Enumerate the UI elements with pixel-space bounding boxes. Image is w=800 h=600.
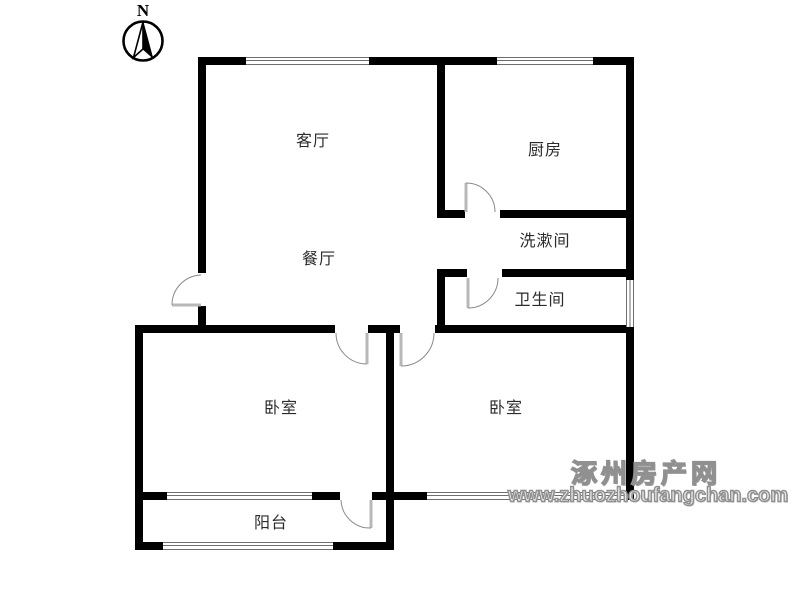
window-balcony bbox=[163, 542, 333, 550]
floor-plan: N 客厅 厨房 餐厅 洗漱间 卫生间 卧室 卧室 阳台 涿州房产网 www.zh… bbox=[0, 0, 800, 600]
room-label-kitchen: 厨房 bbox=[528, 136, 562, 160]
door-bedroom-left bbox=[336, 333, 367, 364]
door-entry bbox=[172, 275, 201, 305]
room-label-bathroom: 卫生间 bbox=[514, 286, 565, 310]
room-label-dining: 餐厅 bbox=[302, 245, 336, 269]
room-label-balcony: 阳台 bbox=[254, 509, 288, 533]
room-label-living: 客厅 bbox=[296, 127, 330, 151]
doors-layer bbox=[172, 183, 498, 528]
window-living-top bbox=[246, 57, 369, 65]
window-bedroom-left bbox=[167, 492, 312, 500]
room-label-bedroom-right: 卧室 bbox=[489, 394, 523, 418]
door-kitchen bbox=[466, 183, 495, 212]
door-bathroom bbox=[468, 278, 498, 308]
room-label-washroom: 洗漱间 bbox=[519, 227, 570, 251]
compass-icon bbox=[124, 22, 163, 61]
floor-plan-drawing bbox=[0, 0, 800, 600]
door-balcony bbox=[341, 500, 371, 528]
compass-north-label: N bbox=[137, 1, 149, 21]
door-bedroom-right bbox=[401, 333, 434, 366]
window-bathroom-right bbox=[626, 280, 634, 327]
room-label-bedroom-left: 卧室 bbox=[264, 394, 298, 418]
window-kitchen-top bbox=[497, 57, 593, 65]
watermark-url: www.zhuozhoufangchan.com bbox=[508, 485, 788, 508]
